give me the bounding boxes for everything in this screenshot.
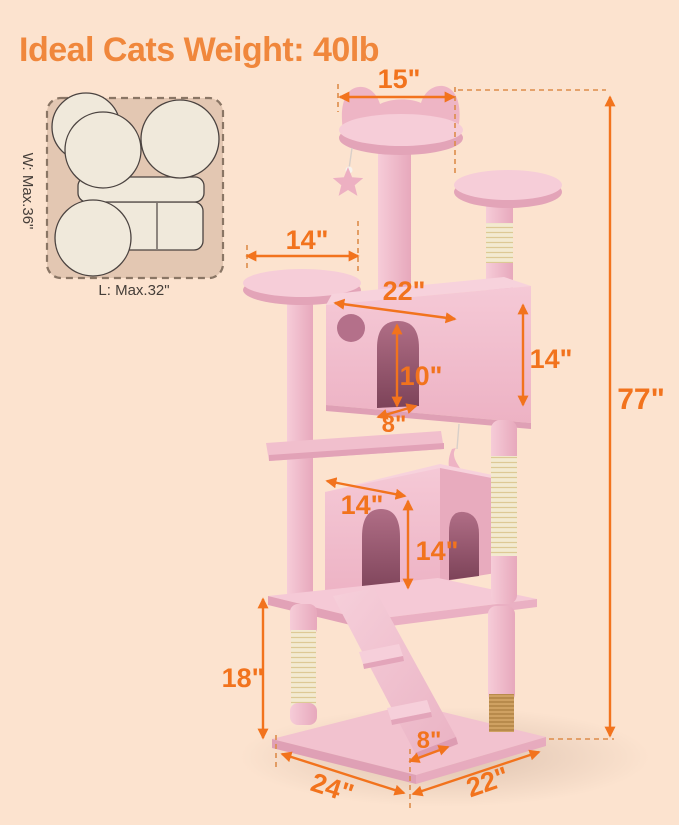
dim-door-height: 10" — [400, 361, 443, 391]
dim-lower-condo-width: 14" — [341, 490, 384, 520]
footprint-perch-front-circle — [65, 112, 141, 188]
dim-top-condo-height: 14" — [530, 344, 573, 374]
dim-lower-condo-height: 14" — [416, 536, 459, 566]
dim-bottom-height: 18" — [222, 663, 265, 693]
footprint-bottom-circle — [55, 200, 131, 276]
product-dimension-infographic: Ideal Cats Weight: 40lb — [0, 0, 679, 825]
upper-right-sisal — [486, 223, 513, 263]
diagram-canvas: W: Max.36" L: Max.32" — [0, 0, 679, 825]
middle-right-sisal — [491, 456, 517, 556]
lower-condo-front-arch — [362, 509, 400, 594]
upper-right-platform — [454, 170, 562, 208]
dim-ramp-width: 8" — [417, 727, 442, 754]
star-toy — [333, 148, 363, 196]
footprint-length-label: L: Max.32" — [98, 282, 169, 299]
dim-door-width: 8" — [382, 411, 407, 438]
dim-top-condo-width: 22" — [383, 276, 426, 306]
dim-top-perch-width: 15" — [378, 64, 421, 94]
dim-total-height: 77" — [617, 383, 665, 416]
footprint-width-label: W: Max.36" — [19, 153, 36, 230]
bottom-left-post — [290, 604, 317, 725]
bottom-right-post — [488, 606, 515, 732]
cat-tree-illustration — [240, 86, 650, 807]
lower-condo — [325, 464, 502, 597]
condo-peek-hole — [337, 314, 365, 342]
star-shape — [333, 167, 363, 196]
top-condo — [326, 277, 531, 429]
footprint-diagram: W: Max.36" L: Max.32" — [19, 93, 223, 299]
dim-upper-platform-width: 14" — [286, 225, 329, 255]
footprint-platform-circle — [141, 100, 219, 178]
